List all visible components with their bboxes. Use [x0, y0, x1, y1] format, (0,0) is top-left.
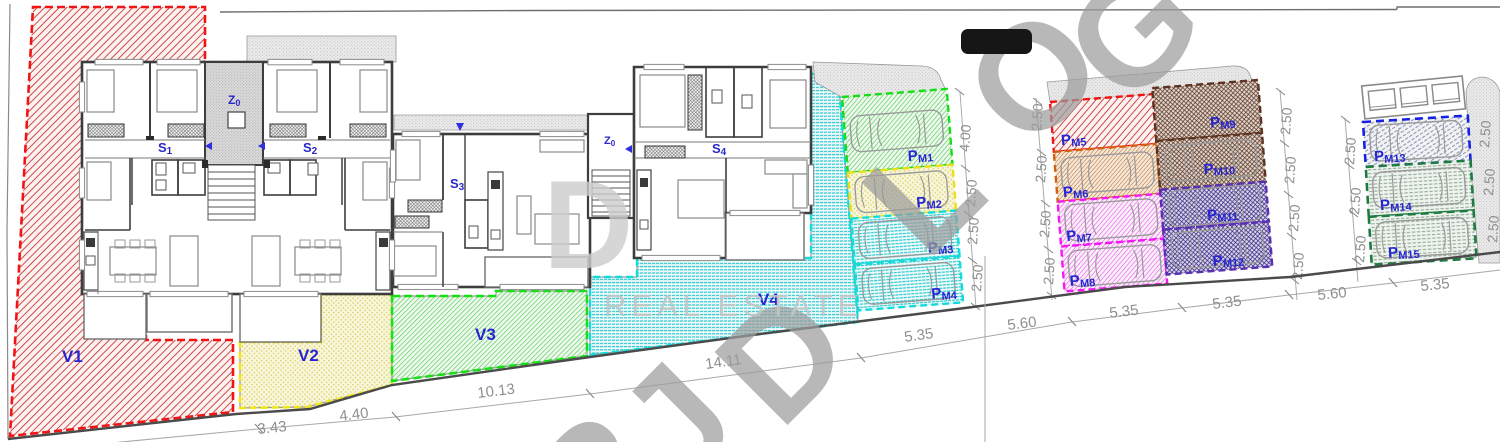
svg-text:2.50: 2.50 [1484, 215, 1500, 244]
svg-text:D: D [543, 156, 633, 295]
svg-text:3.43: 3.43 [257, 418, 288, 438]
svg-text:V2: V2 [298, 346, 319, 365]
svg-text:2.50: 2.50 [1040, 257, 1058, 286]
svg-text:4.00: 4.00 [956, 124, 974, 153]
svg-text:REAL ESTATE: REAL ESTATE [604, 288, 863, 323]
svg-text:4.40: 4.40 [338, 405, 369, 425]
svg-text:5.35: 5.35 [1108, 302, 1139, 322]
svg-text:5.60: 5.60 [1317, 284, 1348, 304]
svg-text:2.50: 2.50 [1346, 187, 1364, 216]
svg-text:V1: V1 [62, 347, 83, 366]
svg-text:2.50: 2.50 [1480, 168, 1498, 197]
svg-text:2.50: 2.50 [1281, 156, 1299, 185]
svg-text:2.50: 2.50 [968, 264, 986, 293]
svg-text:5.60: 5.60 [1006, 314, 1037, 334]
svg-text:V3: V3 [475, 325, 496, 344]
svg-text:2.50: 2.50 [1341, 137, 1359, 166]
svg-text:2.50: 2.50 [1277, 107, 1295, 136]
svg-text:2.50: 2.50 [1285, 204, 1303, 233]
svg-text:5.35: 5.35 [1420, 275, 1451, 295]
svg-text:2.50: 2.50 [1476, 120, 1494, 149]
svg-text:5.35: 5.35 [1211, 293, 1242, 313]
svg-text:2.50: 2.50 [1036, 210, 1054, 239]
